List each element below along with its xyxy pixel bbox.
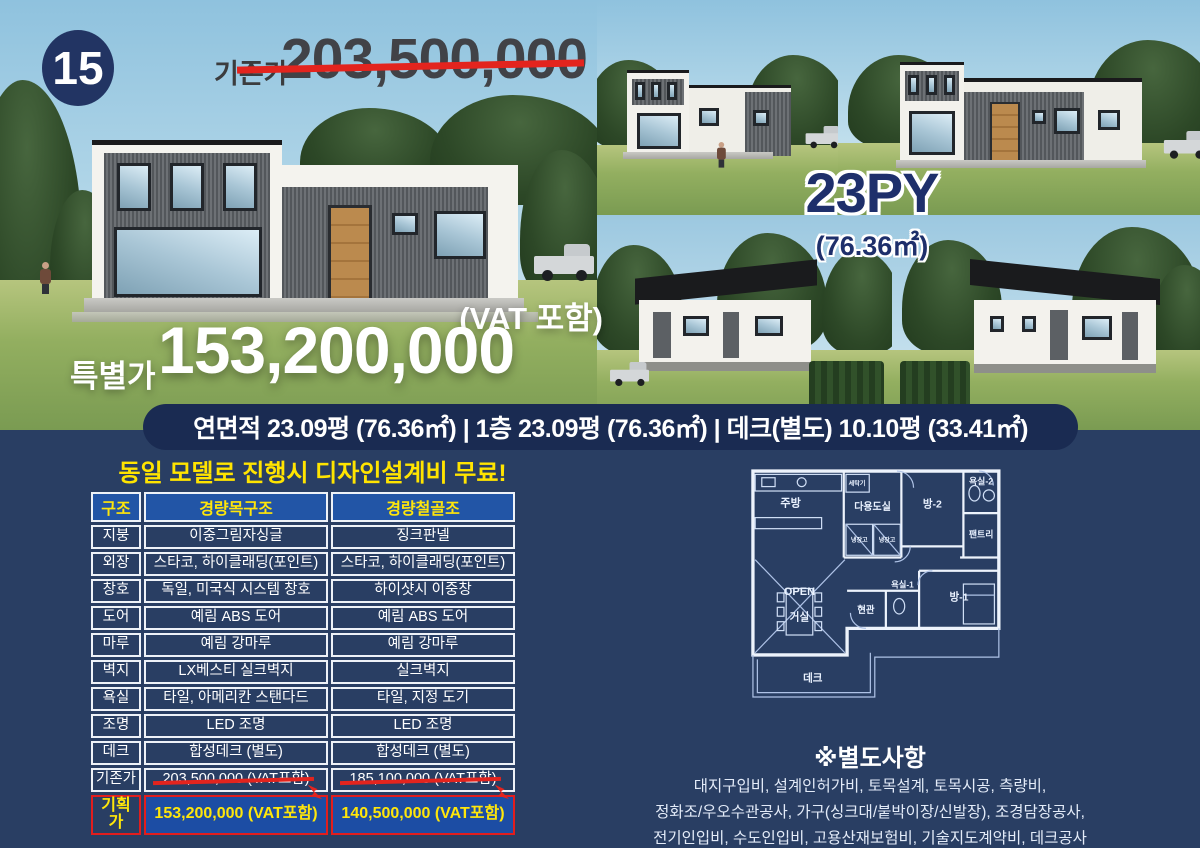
red-arrow-icon xyxy=(493,782,511,802)
header-wood-frame: 경량목구조 xyxy=(144,492,328,522)
model-area: (76.36㎡) xyxy=(742,224,1002,263)
spec-row-label: 도어 xyxy=(91,606,141,630)
spec-row-label: 창호 xyxy=(91,579,141,603)
room-label: 냉장고 xyxy=(879,536,896,544)
rear-door xyxy=(1122,312,1138,360)
spec-cell: 독일, 미국식 시스템 창호 xyxy=(144,579,328,603)
red-arrow-icon xyxy=(306,782,324,802)
table-row: 마루 예림 강마루 예림 강마루 xyxy=(91,633,515,657)
spec-row-label: 벽지 xyxy=(91,660,141,684)
area-banner-text: 연면적 23.09평 (76.36㎡) | 1층 23.09평 (76.36㎡)… xyxy=(193,409,1028,445)
spec-table: 구조 경량목구조 경량철골조 지붕 이중그림자싱글 징크판넬 외장 스타코, 하… xyxy=(88,489,518,838)
spec-cell: 예림 ABS 도어 xyxy=(144,606,328,630)
hedge xyxy=(809,361,884,405)
house-body xyxy=(900,62,964,165)
table-row: 욕실 타일, 아메리칸 스탠다드 타일, 지정 도기 xyxy=(91,687,515,711)
table-row: 도어 예림 ABS 도어 예림 ABS 도어 xyxy=(91,606,515,630)
plan-price-label: 기획가 xyxy=(91,795,141,835)
original-price-value: 203,500,000 xyxy=(281,26,587,92)
porch-steps xyxy=(623,152,773,159)
rear-door xyxy=(653,312,671,358)
extras-line: 대지구입비, 설계인허가비, 토목설계, 토목시공, 측량비, xyxy=(630,774,1110,796)
pickup-truck xyxy=(610,362,651,388)
room-label: 팬트리 xyxy=(969,529,993,540)
spec-cell: 하이샷시 이중창 xyxy=(331,579,515,603)
spec-cell: 이중그림자싱글 xyxy=(144,525,328,549)
spec-row-label: 데크 xyxy=(91,741,141,765)
header-steel-frame: 경량철골조 xyxy=(331,492,515,522)
promo-text: 동일 모델로 진행시 디자인설계비 무료! xyxy=(85,453,540,488)
room-label: 욕실-1 xyxy=(891,579,914,589)
spec-cell: 징크판넬 xyxy=(331,525,515,549)
stone-base xyxy=(639,362,811,371)
plan-price-row: 기획가 153,200,000 (VAT포함) 140,500,000 (VAT… xyxy=(91,795,515,835)
rear-door xyxy=(723,312,739,358)
floor-plan: 주방 세탁기 다용도실 냉장고 냉장고 방-2 욕실-2 팬트리 OPEN 거실… xyxy=(733,460,1021,748)
area-banner: 연면적 23.09평 (76.36㎡) | 1층 23.09평 (76.36㎡)… xyxy=(143,404,1078,450)
room-label: 다용도실 xyxy=(854,500,891,513)
room-label: 세탁기 xyxy=(849,479,866,487)
plan-price-steel: 140,500,000 (VAT포함) xyxy=(331,795,515,835)
stone-base xyxy=(974,364,1156,373)
front-door xyxy=(990,102,1020,166)
header-structure: 구조 xyxy=(91,492,141,522)
pickup-truck xyxy=(534,244,597,284)
spec-row-label: 조명 xyxy=(91,714,141,738)
spec-cell: 합성데크 (별도) xyxy=(331,741,515,765)
spec-cell: 스타코, 하이클래딩(포인트) xyxy=(144,552,328,576)
old-price-row: 기존가 203,500,000 (VAT포함) 185,100,000 (VAT… xyxy=(91,768,515,792)
spec-cell: 타일, 지정 도기 xyxy=(331,687,515,711)
old-price-wood: 203,500,000 (VAT포함) xyxy=(144,768,328,792)
special-price-label: 특별가 xyxy=(70,351,156,396)
spec-cell: 합성데크 (별도) xyxy=(144,741,328,765)
old-price-steel: 185,100,000 (VAT포함) xyxy=(331,768,515,792)
spec-row-label: 욕실 xyxy=(91,687,141,711)
room-label: 거실 xyxy=(790,611,809,624)
table-row: 외장 스타코, 하이클래딩(포인트) 스타코, 하이클래딩(포인트) xyxy=(91,552,515,576)
extras-heading: ※별도사항 xyxy=(720,738,1020,773)
room-label: 방-2 xyxy=(923,498,942,511)
hedge xyxy=(900,361,970,407)
spec-row-label: 외장 xyxy=(91,552,141,576)
spec-cell: 스타코, 하이클래딩(포인트) xyxy=(331,552,515,576)
spec-cell: LED 조명 xyxy=(331,714,515,738)
item-number-badge: 15 xyxy=(42,30,114,106)
room-label: 현관 xyxy=(857,604,875,615)
house-wing xyxy=(689,85,791,156)
house-wing xyxy=(282,165,518,302)
table-row: 데크 합성데크 (별도) 합성데크 (별도) xyxy=(91,741,515,765)
table-row: 벽지 LX베스티 실크벽지 실크벽지 xyxy=(91,660,515,684)
house-body xyxy=(92,140,282,307)
spec-row-label: 지붕 xyxy=(91,525,141,549)
spec-cell: LX베스티 실크벽지 xyxy=(144,660,328,684)
room-label: 주방 xyxy=(780,496,801,510)
pickup-truck xyxy=(806,126,838,150)
room-label: 방-1 xyxy=(949,591,968,604)
spec-cell: 예림 ABS 도어 xyxy=(331,606,515,630)
rear-door xyxy=(1050,310,1068,360)
room-label: OPEN xyxy=(784,586,815,598)
spec-row-label: 마루 xyxy=(91,633,141,657)
old-price-label: 기존가 xyxy=(91,768,141,792)
plan-price-wood: 153,200,000 (VAT포함) xyxy=(144,795,328,835)
spec-cell: 예림 강마루 xyxy=(144,633,328,657)
spec-cell: 예림 강마루 xyxy=(331,633,515,657)
table-row: 조명 LED 조명 LED 조명 xyxy=(91,714,515,738)
room-label: 냉장고 xyxy=(851,536,868,544)
room-label: 데크 xyxy=(803,672,823,685)
house-body xyxy=(639,300,811,362)
table-row: 창호 독일, 미국식 시스템 창호 하이샷시 이중창 xyxy=(91,579,515,603)
house-wing xyxy=(964,78,1142,166)
room-label: 욕실-2 xyxy=(969,475,993,486)
front-door xyxy=(328,205,372,306)
spec-cell: 타일, 아메리칸 스탠다드 xyxy=(144,687,328,711)
extras-line: 정화조/우오수관공사, 가구(싱크대/붙박이장/신발장), 조경담장공사, xyxy=(630,800,1110,822)
special-price-value: 153,200,000 xyxy=(158,312,514,388)
poster: 15 기존가 203,500,000 (VAT 포함) 특별가 153,200,… xyxy=(0,0,1200,848)
pickup-truck xyxy=(1164,131,1200,161)
spec-cell: LED 조명 xyxy=(144,714,328,738)
house-body xyxy=(974,300,1156,364)
house-body xyxy=(627,70,689,157)
model-size: 23PY xyxy=(742,160,1002,225)
extras-line: 전기인입비, 수도인입비, 고용산재보험비, 기술지도계약비, 데크공사 xyxy=(630,826,1110,848)
spec-cell: 실크벽지 xyxy=(331,660,515,684)
table-header-row: 구조 경량목구조 경량철골조 xyxy=(91,492,515,522)
table-row: 지붕 이중그림자싱글 징크판넬 xyxy=(91,525,515,549)
